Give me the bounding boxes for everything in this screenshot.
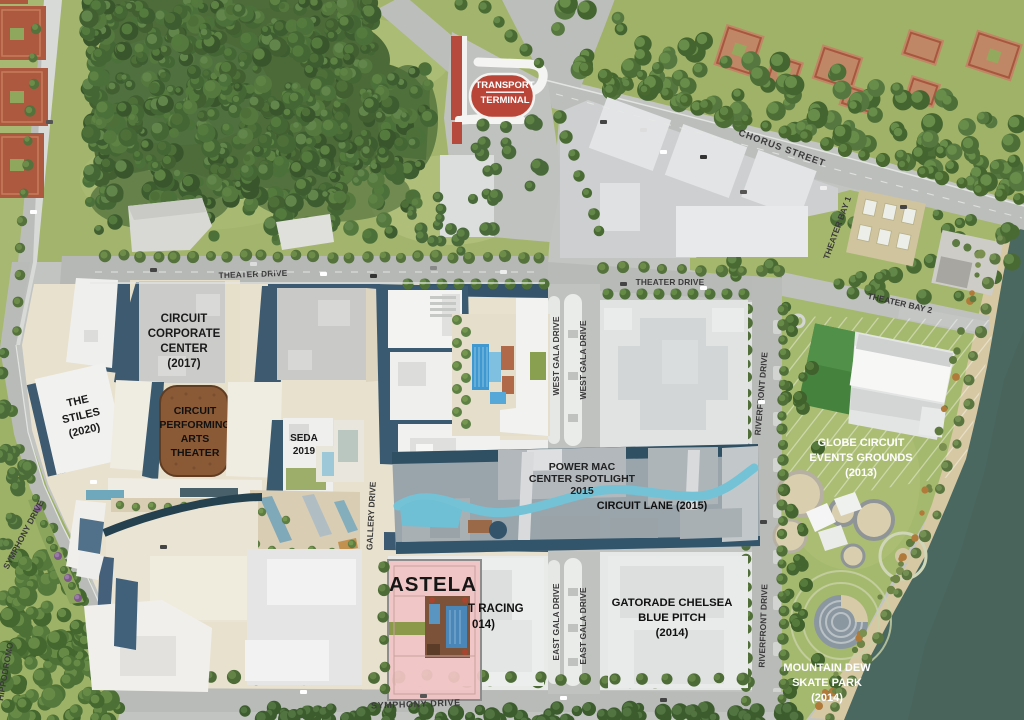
svg-text:SKATE PARK: SKATE PARK bbox=[792, 677, 862, 689]
svg-text:CIRCUIT LANE (2015): CIRCUIT LANE (2015) bbox=[597, 500, 708, 512]
svg-text:T RACING: T RACING bbox=[468, 603, 524, 615]
svg-text:EAST GALA DRIVE: EAST GALA DRIVE bbox=[578, 587, 588, 664]
svg-text:WEST GALA DRIVE: WEST GALA DRIVE bbox=[578, 320, 588, 399]
svg-text:2015: 2015 bbox=[570, 485, 594, 497]
svg-text:(2014): (2014) bbox=[656, 627, 689, 639]
svg-text:CIRCUIT: CIRCUIT bbox=[161, 313, 208, 325]
svg-text:BLUE PITCH: BLUE PITCH bbox=[638, 612, 706, 624]
svg-text:CENTER: CENTER bbox=[160, 343, 208, 355]
svg-text:WEST GALA DRIVE: WEST GALA DRIVE bbox=[551, 316, 561, 395]
svg-text:PERFORMING: PERFORMING bbox=[159, 419, 230, 431]
svg-text:EVENTS GROUNDS: EVENTS GROUNDS bbox=[809, 452, 912, 464]
svg-text:MOUNTAIN DEW: MOUNTAIN DEW bbox=[783, 662, 871, 674]
svg-text:THEATER DRIVE: THEATER DRIVE bbox=[636, 277, 705, 287]
svg-text:014): 014) bbox=[472, 619, 495, 631]
svg-text:SEDA: SEDA bbox=[290, 433, 318, 444]
svg-text:2019: 2019 bbox=[293, 446, 316, 457]
svg-text:GLOBE CIRCUIT: GLOBE CIRCUIT bbox=[818, 437, 905, 449]
svg-text:CORPORATE: CORPORATE bbox=[148, 328, 221, 340]
svg-text:THEATER: THEATER bbox=[171, 447, 220, 459]
svg-text:EAST GALA DRIVE: EAST GALA DRIVE bbox=[551, 583, 561, 660]
svg-text:(2014): (2014) bbox=[811, 692, 843, 704]
svg-text:GATORADE CHELSEA: GATORADE CHELSEA bbox=[612, 597, 733, 609]
svg-text:POWER MAC: POWER MAC bbox=[549, 461, 616, 473]
svg-text:ASTELA: ASTELA bbox=[389, 573, 477, 596]
svg-text:CENTER SPOTLIGHT: CENTER SPOTLIGHT bbox=[529, 473, 636, 485]
svg-text:TRANSPORT: TRANSPORT bbox=[475, 80, 534, 91]
svg-text:(2013): (2013) bbox=[845, 467, 877, 479]
svg-text:(2017): (2017) bbox=[167, 358, 200, 370]
svg-text:CIRCUIT: CIRCUIT bbox=[174, 405, 217, 417]
svg-text:ARTS: ARTS bbox=[181, 433, 210, 445]
svg-text:TERMINAL: TERMINAL bbox=[480, 95, 529, 106]
